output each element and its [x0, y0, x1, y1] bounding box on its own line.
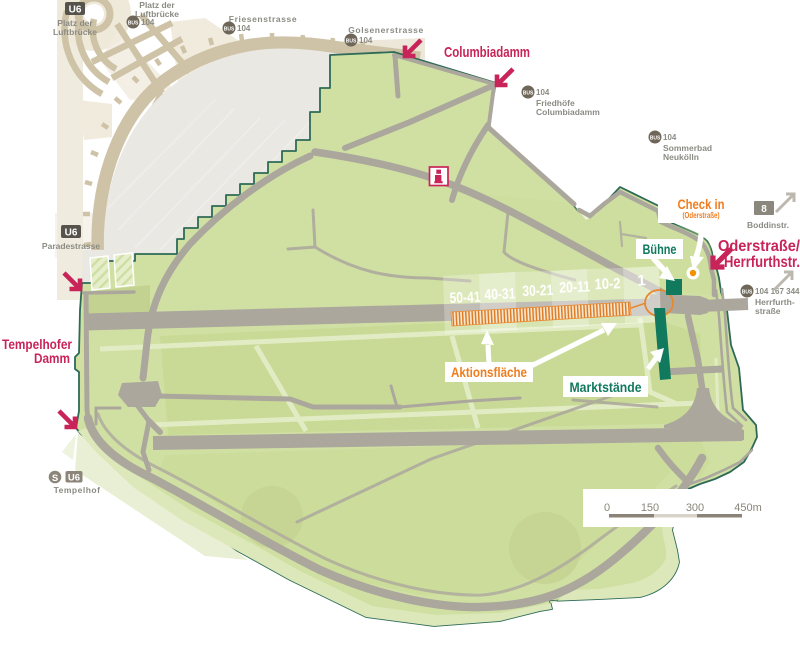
svg-text:30-21: 30-21	[522, 282, 554, 300]
svg-text:Tempelhofer: Tempelhofer	[2, 337, 73, 352]
svg-text:Aktionsfläche: Aktionsfläche	[451, 364, 527, 380]
svg-text:Herrfurthstr.: Herrfurthstr.	[724, 254, 800, 271]
svg-text:20-11: 20-11	[559, 278, 591, 296]
svg-text:104: 104	[359, 36, 373, 45]
svg-text:Bühne: Bühne	[643, 241, 677, 257]
svg-text:BUS: BUS	[224, 27, 235, 33]
svg-text:U6: U6	[68, 473, 80, 484]
svg-text:Luftbrücke: Luftbrücke	[53, 27, 97, 37]
svg-text:U6: U6	[65, 228, 78, 239]
svg-text:BUS: BUS	[346, 39, 357, 45]
svg-text:BUS: BUS	[742, 290, 753, 296]
svg-text:Marktstände: Marktstände	[570, 379, 642, 395]
svg-text:104: 104	[663, 133, 677, 142]
svg-text:straße: straße	[755, 306, 781, 316]
svg-text:Columbiadamm: Columbiadamm	[536, 107, 600, 117]
svg-text:450m: 450m	[734, 502, 762, 514]
svg-text:Columbiadamm: Columbiadamm	[444, 44, 530, 61]
svg-text:10-2: 10-2	[594, 275, 621, 293]
svg-text:Check in: Check in	[678, 196, 725, 212]
svg-text:104: 104	[237, 24, 251, 33]
svg-text:8: 8	[761, 204, 767, 215]
svg-text:Friesenstrasse: Friesenstrasse	[229, 14, 297, 24]
svg-text:0: 0	[604, 502, 610, 514]
svg-text:Tempelhof: Tempelhof	[54, 485, 101, 495]
svg-text:S: S	[52, 473, 58, 484]
svg-text:BUS: BUS	[650, 136, 661, 142]
svg-text:Oderstraße/: Oderstraße/	[718, 238, 800, 255]
svg-text:Neukölln: Neukölln	[663, 152, 699, 162]
svg-text:(Oderstraße): (Oderstraße)	[683, 211, 720, 220]
svg-text:U6: U6	[69, 5, 82, 16]
svg-text:Boddinstr.: Boddinstr.	[747, 220, 789, 230]
svg-text:150: 150	[641, 502, 659, 514]
svg-text:50-41: 50-41	[449, 289, 481, 307]
svg-text:Paradestrasse: Paradestrasse	[42, 241, 100, 251]
svg-text:BUS: BUS	[128, 21, 139, 27]
svg-text:Damm: Damm	[34, 351, 70, 366]
svg-text:40-31: 40-31	[484, 285, 516, 303]
svg-text:BUS: BUS	[523, 91, 534, 97]
svg-text:104: 104	[536, 88, 550, 97]
svg-text:104: 104	[141, 18, 155, 27]
svg-text:300: 300	[686, 502, 704, 514]
svg-text:Golsenerstrasse: Golsenerstrasse	[348, 25, 424, 35]
svg-text:1: 1	[637, 272, 646, 289]
